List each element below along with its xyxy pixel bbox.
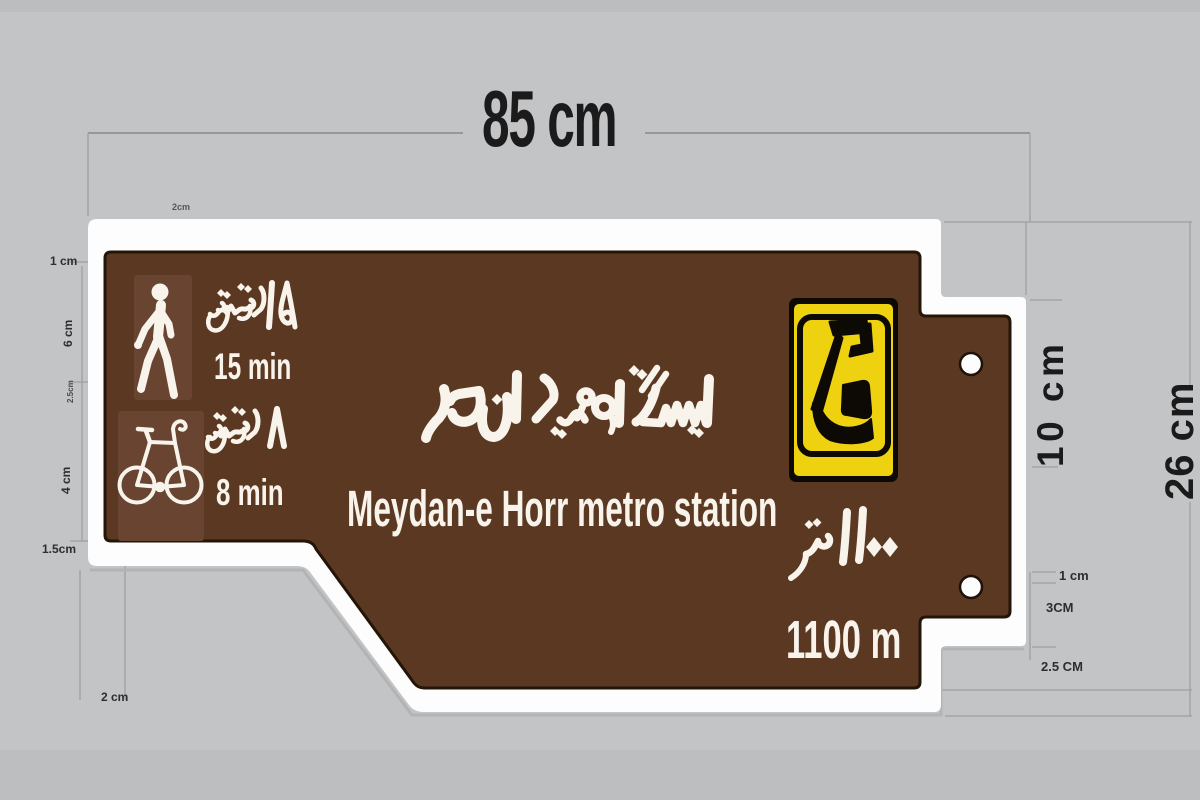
svg-text:10 cm: 10 cm [1030,340,1071,467]
svg-text:8 min: 8 min [216,471,284,513]
svg-text:1 cm: 1 cm [50,254,77,268]
svg-text:2 cm: 2 cm [101,690,128,704]
svg-text:4 cm: 4 cm [59,467,73,494]
svg-text:3CM: 3CM [1046,600,1073,615]
svg-text:85 cm: 85 cm [482,75,616,164]
svg-text:1 cm: 1 cm [1059,568,1089,583]
svg-text:1.5cm: 1.5cm [42,542,76,556]
svg-text:Meydan-e Horr metro station: Meydan-e Horr metro station [347,480,777,536]
svg-text:2.5cm: 2.5cm [66,380,75,403]
svg-text:26 cm: 26 cm [1158,382,1200,500]
svg-text:2cm: 2cm [172,202,190,212]
svg-text:15 min: 15 min [214,346,291,387]
svg-text:1100 m: 1100 m [786,609,901,670]
svg-text:6 cm: 6 cm [61,320,75,347]
svg-text:2.5 CM: 2.5 CM [1041,659,1083,674]
